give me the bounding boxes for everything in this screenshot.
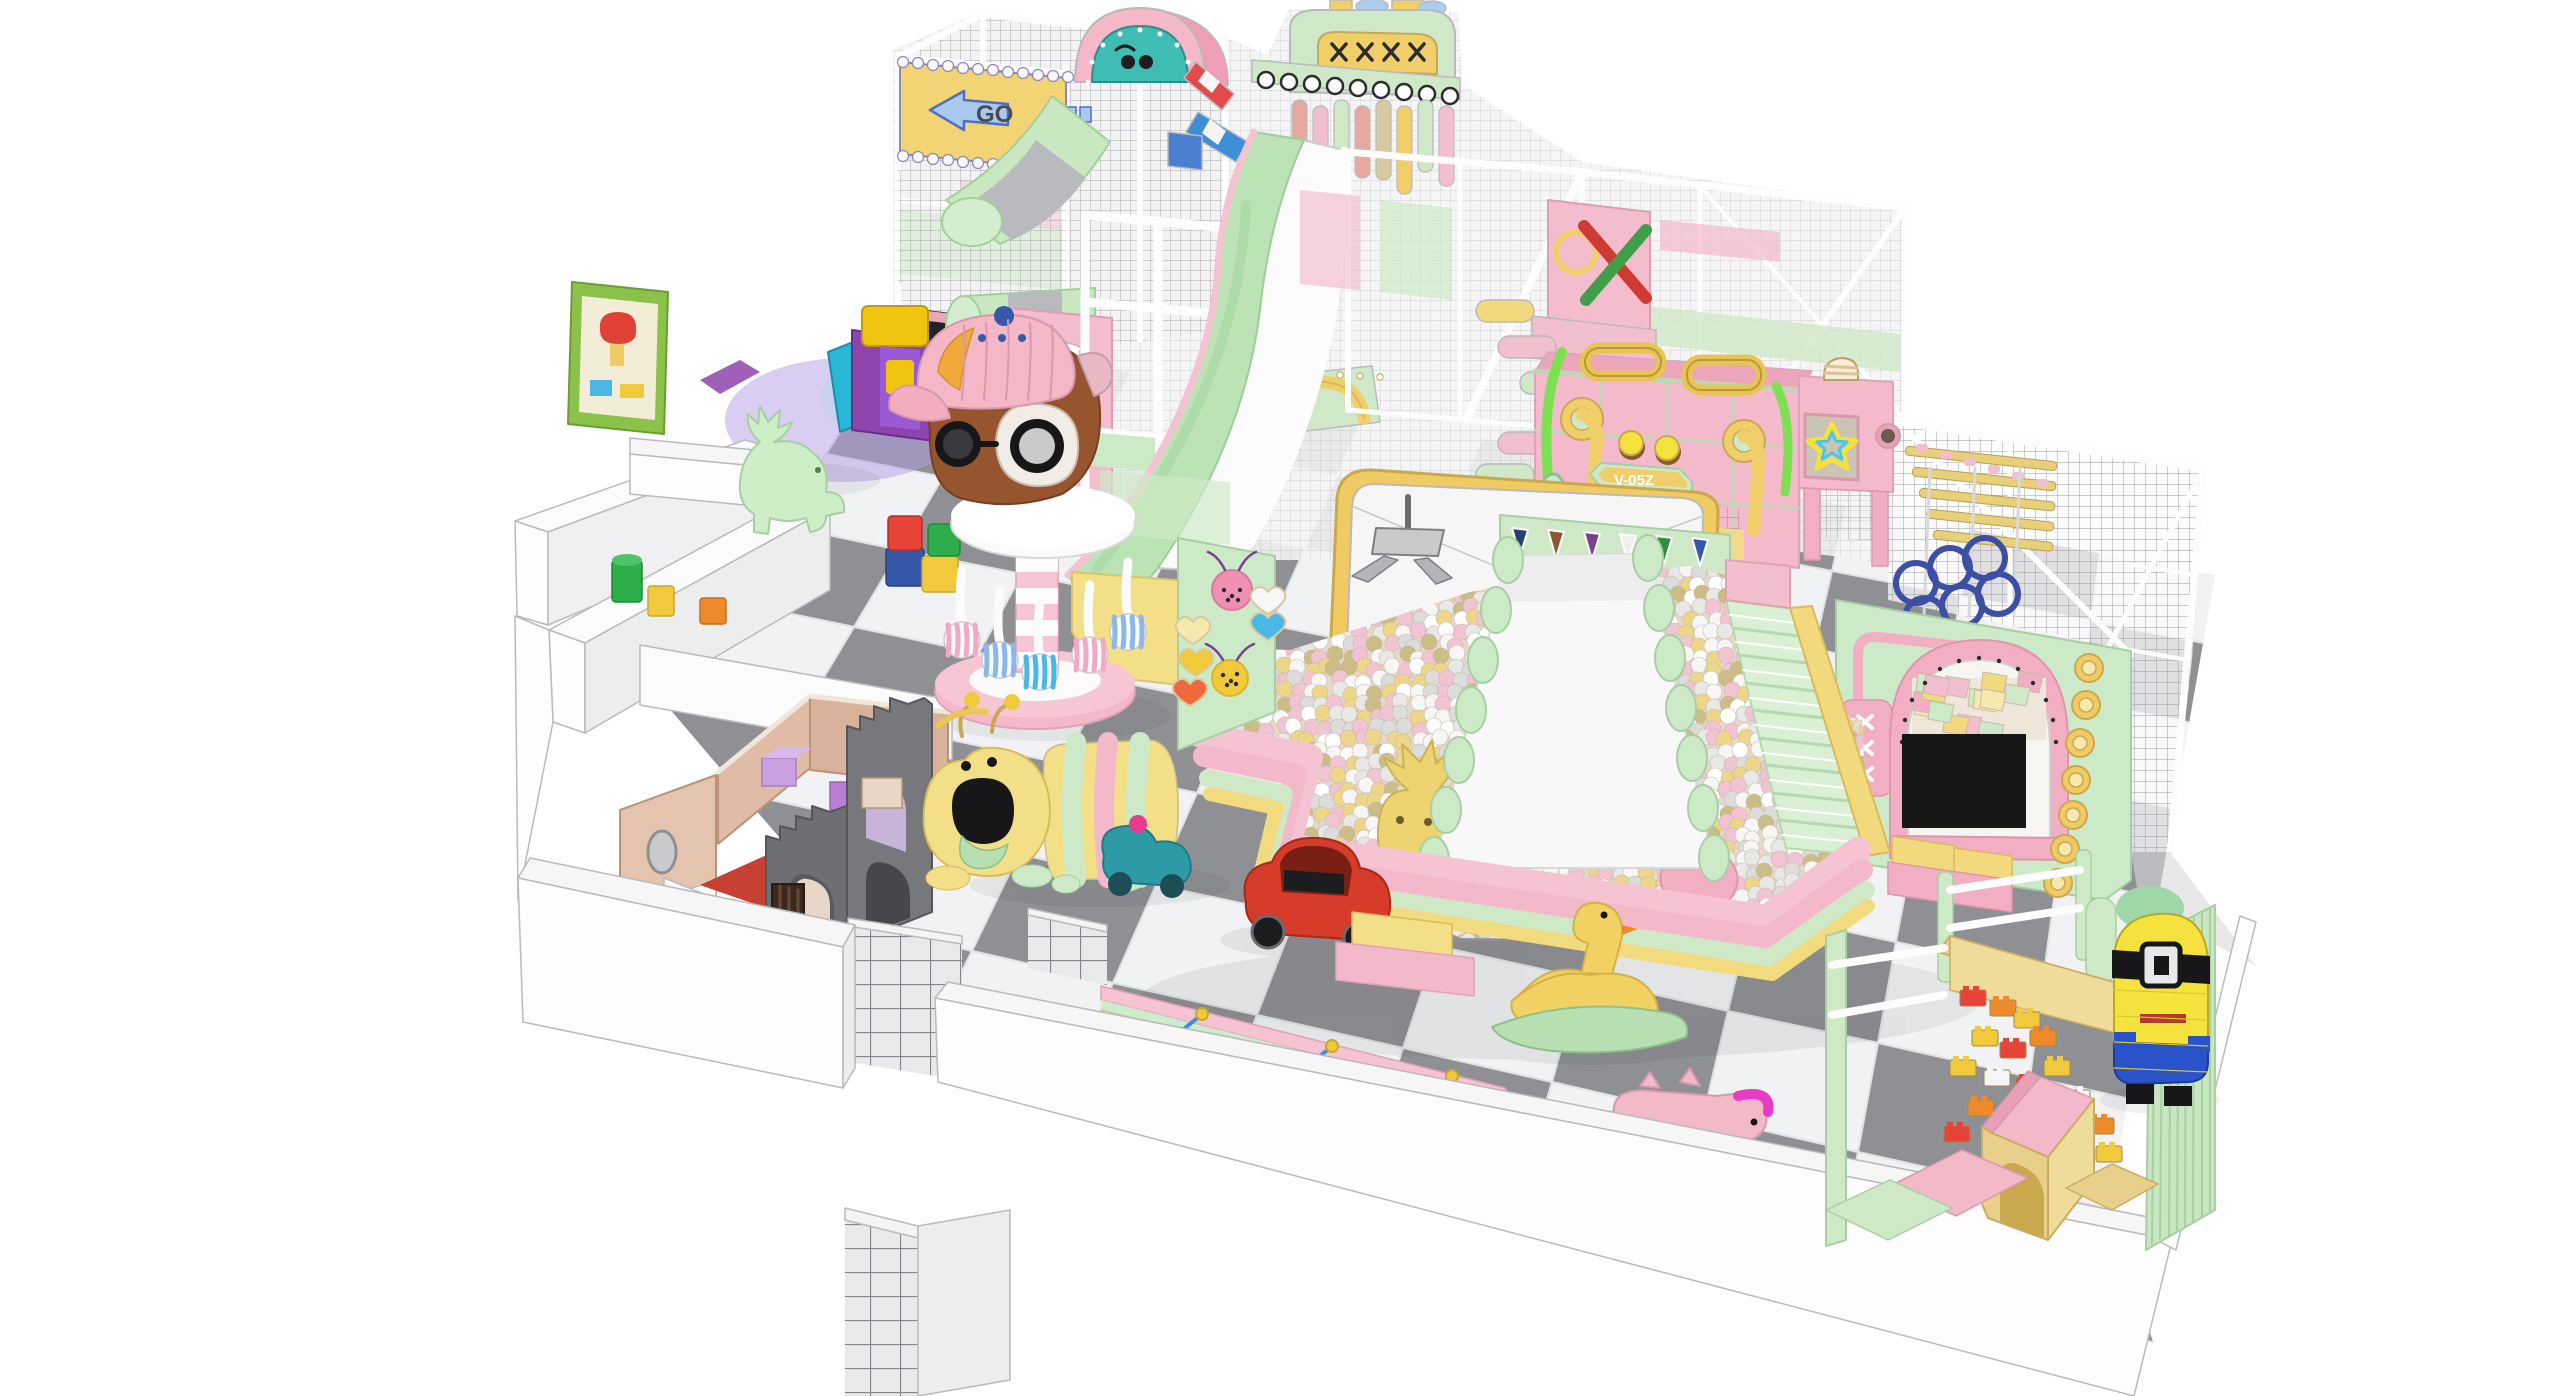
svg-text:GO: GO (976, 101, 1013, 128)
